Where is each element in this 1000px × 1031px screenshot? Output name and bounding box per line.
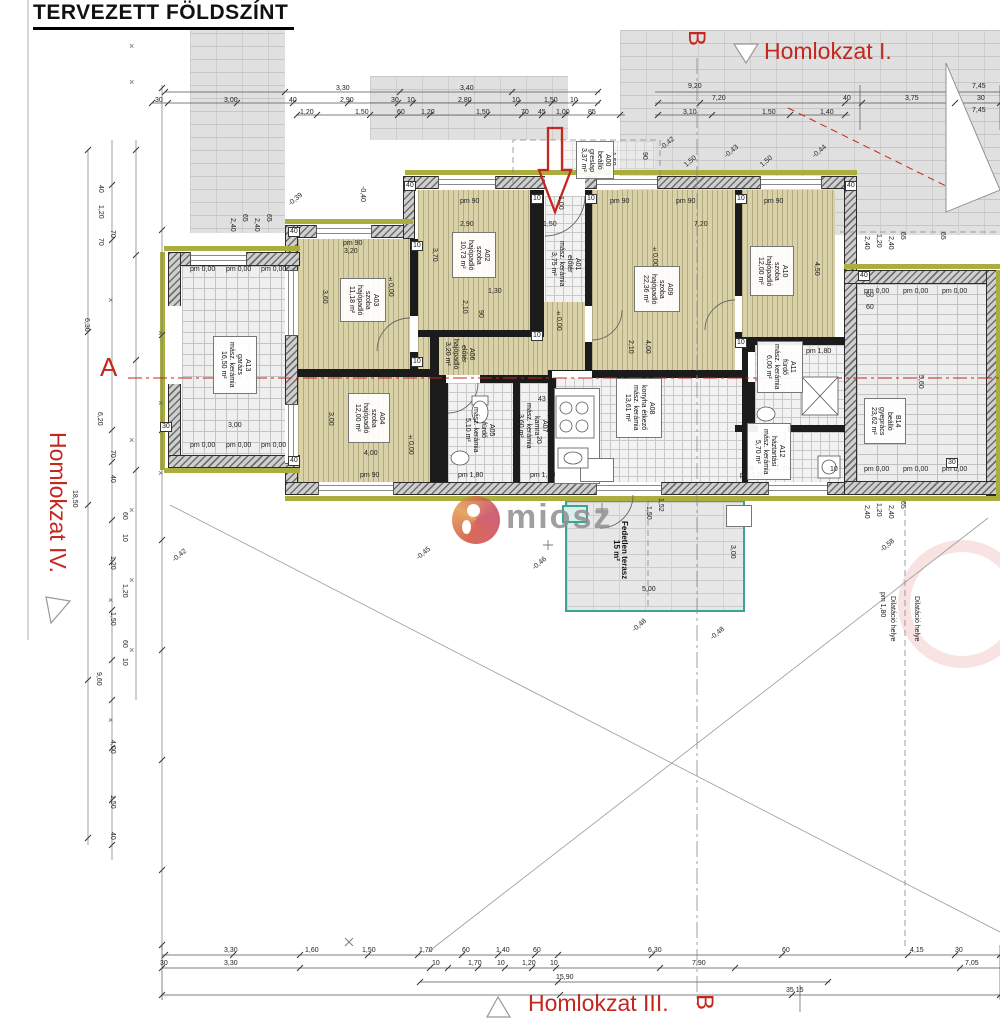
window-A04-left bbox=[285, 404, 298, 464]
dim-label: -0,45 bbox=[415, 546, 432, 562]
dim-label: 1,52 bbox=[656, 498, 664, 512]
dim-label: 30 bbox=[391, 97, 399, 105]
room-label-A02: A02 szoba hajópadló 10,73 m² bbox=[452, 232, 496, 278]
garage-wall-bottom bbox=[168, 455, 300, 468]
room-label-A05: A05 fürdő mász. kerámia 5,10 m² bbox=[463, 402, 495, 458]
window-A02 bbox=[438, 176, 496, 189]
dim-label: 2,80 bbox=[458, 97, 472, 105]
dim-label: 4,00 bbox=[108, 740, 116, 754]
dim-label: 30 bbox=[946, 458, 958, 468]
dim-label: 3,10 bbox=[683, 109, 697, 117]
dim-label: 3,75 bbox=[905, 95, 919, 103]
dim-label: pm 0,00 bbox=[261, 442, 286, 450]
dim-label: 1,60 bbox=[305, 947, 319, 955]
dim-label: 3,40 bbox=[460, 85, 474, 93]
dim-label: Dilatáció helye bbox=[888, 596, 896, 642]
masonry-block-top-left bbox=[190, 20, 285, 233]
homlokzat-iv-triangle-icon bbox=[46, 597, 70, 623]
dim-label: 3,00 bbox=[326, 412, 334, 426]
kitchen-cabinet bbox=[580, 458, 614, 482]
dim-label: 85 bbox=[588, 109, 596, 117]
dim-label: 3,60 bbox=[320, 290, 328, 304]
dim-label: 6,20 bbox=[95, 412, 103, 426]
dim-label: 3,30 bbox=[224, 947, 238, 955]
dim-label: 7,20 bbox=[694, 221, 708, 229]
dim-label: 1,40 bbox=[820, 109, 834, 117]
dim-label: 1,20 bbox=[874, 503, 882, 517]
dim-label: 1,50 bbox=[644, 506, 652, 520]
window-A03-left bbox=[285, 270, 298, 336]
dim-label: 2,40 bbox=[862, 236, 870, 250]
dim-label: 60 bbox=[120, 640, 128, 648]
window-A12 bbox=[768, 482, 828, 495]
kitchen-door-gap bbox=[552, 371, 592, 378]
dim-label: 10 bbox=[735, 194, 747, 204]
dim-label: Dilatáció helye bbox=[912, 596, 920, 642]
dim-label: 1,70 bbox=[468, 960, 482, 968]
dim-label: 7,90 bbox=[692, 960, 706, 968]
dim-label: 10 bbox=[432, 960, 440, 968]
garage-door-gap bbox=[168, 306, 181, 384]
dim-label: pm 0,00 bbox=[903, 288, 928, 296]
hall-floor-inner bbox=[537, 302, 592, 375]
dim-label: 60 bbox=[782, 947, 790, 955]
dim-label: 40 bbox=[404, 181, 416, 191]
dim-label: 1,20 bbox=[874, 234, 882, 248]
homlokzat-i-label: Homlokzat I. bbox=[764, 38, 892, 65]
dim-label: 70 bbox=[96, 238, 104, 246]
dim-label: 7,45 bbox=[972, 83, 986, 91]
dim-label: 4,00 bbox=[364, 450, 378, 458]
partition-A03-A04 bbox=[298, 369, 439, 377]
insulation-top-left bbox=[285, 219, 413, 224]
window-A04 bbox=[318, 482, 394, 495]
partition-A04-right bbox=[430, 330, 439, 482]
carport-wall-bottom bbox=[844, 481, 1000, 495]
dim-label: -0,40 bbox=[358, 186, 366, 202]
dim-label: 1,00 bbox=[556, 196, 564, 210]
dim-label: pm 0,00 bbox=[864, 466, 889, 474]
dim-label: ±0,00 bbox=[406, 434, 414, 455]
dim-label: pm 90 bbox=[676, 198, 695, 206]
room-label-A06: A06 előtér hajópadló 3,20 m² bbox=[446, 331, 472, 377]
dim-label: pm 0,00 bbox=[261, 266, 286, 274]
dim-label: 10 bbox=[735, 338, 747, 348]
room-label-A00: A00 beálló greslap 3,37 m² bbox=[576, 141, 614, 179]
dim-label: 1,20 bbox=[96, 205, 104, 219]
dim-label: 60 bbox=[866, 292, 874, 300]
insulation-garage-left bbox=[160, 252, 165, 470]
dim-label: 5,00 bbox=[642, 586, 656, 594]
dim-label: 2,40 bbox=[886, 505, 894, 519]
dim-label: 1,30 bbox=[488, 288, 502, 296]
dim-label: 2,40 bbox=[862, 505, 870, 519]
terrace-door bbox=[596, 482, 662, 495]
dim-label: 5,60 bbox=[916, 375, 924, 389]
dim-label: 60 bbox=[866, 304, 874, 312]
dim-label: 1,20 bbox=[300, 109, 314, 117]
insulation-top-main bbox=[405, 170, 857, 175]
dim-label: pm 1,80 bbox=[530, 472, 555, 480]
room-label-A08: A08 konyha étkező mász. kerámia 13,61 m² bbox=[616, 378, 662, 438]
A11-door-gap bbox=[748, 352, 755, 382]
dim-label: -0,48 bbox=[709, 626, 726, 642]
dim-label: 10 bbox=[570, 97, 578, 105]
dim-label: 1,50 bbox=[544, 97, 558, 105]
dim-label: pm 90 bbox=[610, 198, 629, 206]
dim-label: 1,20 bbox=[421, 109, 435, 117]
dim-label: 60 bbox=[533, 947, 541, 955]
dim-label: 40 bbox=[843, 95, 851, 103]
room-label-A03: A03 szoba hajópadló 11,18 m² bbox=[340, 278, 386, 322]
dim-label: 10 bbox=[407, 97, 415, 105]
room-label-B14: B14 beálló gyeprács 23,62 m² bbox=[864, 398, 906, 444]
section-a-label: A bbox=[100, 352, 117, 383]
dim-label: 35,15 bbox=[786, 987, 804, 995]
dim-label: 1,00 bbox=[556, 109, 570, 117]
A10-door-gap bbox=[735, 296, 742, 332]
dim-label: 65 bbox=[898, 232, 906, 240]
dim-label: 10 bbox=[830, 466, 838, 474]
dim-label: -0,39 bbox=[287, 192, 304, 208]
partition-A05-left bbox=[439, 375, 448, 482]
dim-label: 40 bbox=[845, 181, 857, 191]
dim-label: -0,58 bbox=[879, 538, 896, 554]
window-A03 bbox=[316, 225, 372, 238]
room-label-A04: A04 szoba hajópadló 12,00 m² bbox=[348, 393, 390, 443]
section-b-bottom-label: B bbox=[690, 994, 718, 1010]
room-label-A01: A01 előtér mász. kerámia 3,75 m² bbox=[552, 240, 578, 288]
dim-label: 30 bbox=[955, 947, 963, 955]
dim-label: 10 bbox=[120, 658, 128, 666]
dim-label: 65 bbox=[264, 214, 272, 222]
dim-label: 18,50 bbox=[70, 490, 78, 508]
dim-label: 4,00 bbox=[643, 340, 651, 354]
dim-label: 10 bbox=[411, 357, 423, 367]
dim-label: 30 bbox=[155, 97, 163, 105]
dim-label: 7,05 bbox=[965, 960, 979, 968]
dim-label: 70 bbox=[108, 450, 116, 458]
dim-label: pm 90 bbox=[764, 198, 783, 206]
dim-label: 2,90 bbox=[460, 221, 474, 229]
room-label-A11: A11 fürdő mász. kerámia 6,00 m² bbox=[757, 341, 803, 393]
partition-A02-bottom bbox=[418, 330, 544, 337]
dim-label: 90 bbox=[476, 310, 484, 318]
insulation-carport-bottom bbox=[844, 496, 1000, 501]
dim-label: 1,50 bbox=[355, 109, 369, 117]
partition-A02-A01 bbox=[530, 190, 544, 337]
watermark-logo-icon bbox=[452, 496, 500, 544]
homlokzat-iii-triangle-icon bbox=[487, 997, 510, 1017]
svg-text:×: × bbox=[108, 715, 113, 725]
svg-text:×: × bbox=[129, 77, 134, 87]
dim-label: 2,40 bbox=[252, 218, 260, 232]
room-label-A13: A13 garázs mász. kerámia 16,50 m² bbox=[213, 336, 257, 394]
dim-label: -0,42 bbox=[171, 548, 188, 564]
svg-text:×: × bbox=[108, 295, 113, 305]
dim-label: 9,20 bbox=[688, 83, 702, 91]
dim-label: pm 1,80 bbox=[806, 348, 831, 356]
dim-label: 7,20 bbox=[712, 95, 726, 103]
dim-label: 40 bbox=[108, 832, 116, 840]
dim-label: 2,90 bbox=[340, 97, 354, 105]
dim-label: 40 bbox=[288, 456, 300, 466]
dim-label: -0,46 bbox=[531, 556, 548, 572]
svg-text:×: × bbox=[129, 435, 134, 445]
dim-label: 40 bbox=[858, 271, 870, 281]
dim-label: 65 bbox=[898, 501, 906, 509]
dim-label: 1,20 bbox=[120, 584, 128, 598]
dim-label: 10 bbox=[585, 194, 597, 204]
dim-label: 4,50 bbox=[812, 262, 820, 276]
dim-label: 2,10 bbox=[460, 300, 468, 314]
dim-label: 1,70 bbox=[419, 947, 433, 955]
terrace-side-box bbox=[726, 505, 752, 527]
insulation-carport-right bbox=[996, 270, 1000, 496]
dim-label: 1,20 bbox=[108, 556, 116, 570]
dim-label: pm 0,00 bbox=[903, 466, 928, 474]
dim-label: 10 bbox=[411, 241, 423, 251]
dim-label: 10 bbox=[531, 194, 543, 204]
dim-label: 1,50 bbox=[762, 109, 776, 117]
svg-text:×: × bbox=[129, 505, 134, 515]
dim-label: 65 bbox=[240, 214, 248, 222]
dim-label: 2,40 bbox=[886, 236, 894, 250]
dim-label: pm 0,00 bbox=[190, 266, 215, 274]
floor-plan-page: TERVEZETT FÖLDSZÍNT bbox=[0, 0, 1000, 1031]
dim-label: 70 bbox=[108, 230, 116, 238]
dim-label: 1,50 bbox=[108, 795, 116, 809]
dim-label: -0,48 bbox=[631, 618, 648, 634]
dim-label: 90 bbox=[640, 152, 648, 160]
partition-A01-A09 bbox=[585, 190, 592, 375]
svg-text:×: × bbox=[129, 575, 134, 585]
dim-label: 2,10 bbox=[740, 352, 748, 366]
room-label-A07: A07 kamra mász. kerámia 3,60 m² bbox=[518, 396, 546, 456]
dim-label: 15,90 bbox=[556, 974, 574, 982]
room-label-A09: A09 szoba hajópadló 22,36 m² bbox=[634, 266, 680, 312]
dim-label: pm 0,00 bbox=[190, 442, 215, 450]
page-title: TERVEZETT FÖLDSZÍNT bbox=[33, 1, 294, 30]
dim-label: 10 bbox=[120, 534, 128, 542]
dim-label: 10 bbox=[497, 960, 505, 968]
dim-label: 3,00 bbox=[228, 422, 242, 430]
dim-label: pm 1,80 bbox=[458, 472, 483, 480]
insulation-garage-bottom bbox=[164, 468, 300, 473]
dim-label: 4,15 bbox=[910, 947, 924, 955]
svg-text:×: × bbox=[129, 645, 134, 655]
A03-door-gap bbox=[410, 316, 418, 352]
dim-label: 3,00 bbox=[728, 545, 736, 559]
A09-door-gap bbox=[585, 306, 592, 342]
homlokzat-iii-label: Homlokzat III. bbox=[528, 990, 669, 1017]
dim-label: 40 bbox=[288, 227, 300, 237]
dim-label: 1,50 bbox=[108, 612, 116, 626]
dim-label: 2,10 bbox=[626, 340, 634, 354]
dim-label: 10 bbox=[550, 960, 558, 968]
dim-label: 30 bbox=[977, 95, 985, 103]
dim-label: 1,50 bbox=[543, 221, 557, 229]
dim-label: 1,20 bbox=[522, 960, 536, 968]
insulation-carport-top bbox=[844, 264, 1000, 269]
dim-label: 3,30 bbox=[336, 85, 350, 93]
window-A10 bbox=[760, 176, 822, 189]
dim-label: 6,30 bbox=[648, 947, 662, 955]
dim-label: 3,30 bbox=[224, 960, 238, 968]
dim-label: 45 bbox=[538, 109, 546, 117]
dim-label: 1,50 bbox=[362, 947, 376, 955]
dim-label: 60 bbox=[462, 947, 470, 955]
dim-label: ±0,00 bbox=[554, 310, 562, 331]
dim-label: 6,30 bbox=[82, 318, 90, 332]
dim-label: pm 90 bbox=[343, 240, 362, 248]
dim-label: 10 bbox=[512, 97, 520, 105]
dim-label: 9,60 bbox=[94, 672, 102, 686]
svg-text:×: × bbox=[108, 595, 113, 605]
dim-label: pm 0,00 bbox=[226, 442, 251, 450]
garage-window-top bbox=[190, 252, 247, 265]
dim-label: ±0,00 bbox=[386, 276, 394, 297]
room-label-A10: A10 szoba hajópadló 12,00 m² bbox=[750, 246, 794, 296]
dim-label: 30 bbox=[160, 960, 168, 968]
dim-label: 3,20 bbox=[344, 248, 358, 256]
dim-label: 65 bbox=[938, 232, 946, 240]
dim-label: 3,00 bbox=[224, 97, 238, 105]
dim-label: pm 90 bbox=[360, 472, 379, 480]
dim-label: 1,40 bbox=[496, 947, 510, 955]
dim-label: 40 bbox=[108, 475, 116, 483]
homlokzat-iv-label: Homlokzat IV. bbox=[44, 432, 71, 573]
outer-wall-right bbox=[844, 176, 857, 495]
watermark-text: miosz bbox=[506, 498, 612, 537]
insulation-garage-top bbox=[164, 246, 300, 251]
dim-label: ±0,00 bbox=[650, 246, 658, 267]
dim-label: 70 bbox=[521, 109, 529, 117]
dim-label: pm 1,80 bbox=[878, 592, 886, 617]
dim-label: 60 bbox=[120, 512, 128, 520]
room-label-A12: A12 háztartási mász. kerámia 5,70 m² bbox=[747, 423, 791, 480]
dim-label: 7,45 bbox=[972, 107, 986, 115]
dim-label: 1,50 bbox=[476, 109, 490, 117]
dim-label: 60 bbox=[397, 109, 405, 117]
dim-label: 10 bbox=[531, 331, 543, 341]
svg-text:×: × bbox=[129, 41, 134, 51]
dim-label: pm 0,00 bbox=[942, 288, 967, 296]
dim-label: 40 bbox=[96, 185, 104, 193]
dim-label: 30 bbox=[160, 422, 172, 432]
dim-label: 40 bbox=[289, 97, 297, 105]
section-b-top-label: B bbox=[682, 30, 710, 46]
dim-label: pm 0,00 bbox=[226, 266, 251, 274]
dim-label: pm 90 bbox=[460, 198, 479, 206]
dim-label: 2,40 bbox=[228, 218, 236, 232]
dim-label: 3,70 bbox=[430, 248, 438, 262]
